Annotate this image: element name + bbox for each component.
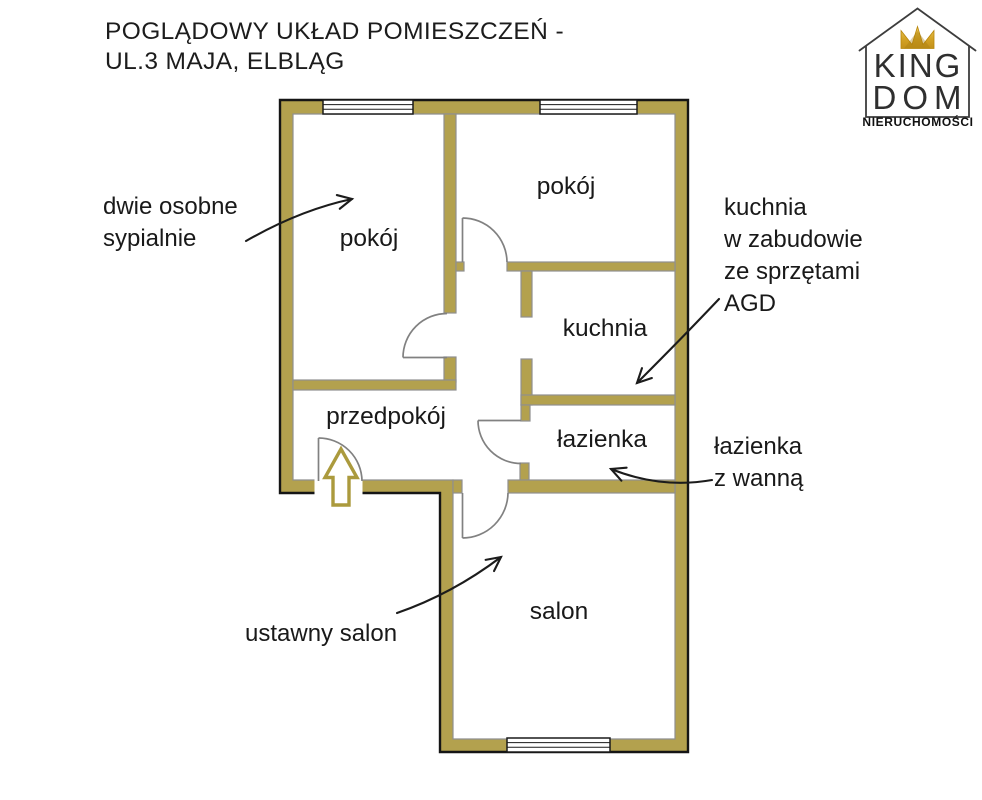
wall-kuchnia-left-upper bbox=[521, 271, 532, 317]
arrow-bedrooms bbox=[246, 199, 352, 241]
note-living-line1: ustawny salon bbox=[245, 618, 397, 650]
floor-plan-drawing bbox=[0, 0, 982, 800]
door-lazienka bbox=[478, 421, 521, 464]
room-label-kuchnia: kuchnia bbox=[563, 315, 647, 343]
note-kitchen: kuchnia w zabudowie ze sprzętami AGD bbox=[724, 192, 863, 320]
logo-word-dom: DOM bbox=[862, 79, 974, 117]
wall-kuchnia-bottom bbox=[521, 395, 675, 405]
door-pokoj-right bbox=[463, 218, 508, 262]
floor-plan-page: POGLĄDOWY UKŁAD POMIESZCZEŃ - UL.3 MAJA,… bbox=[0, 0, 982, 800]
room-label-salon: salon bbox=[530, 598, 589, 626]
window-pokoj-right bbox=[540, 100, 637, 114]
door-pokoj-left bbox=[403, 314, 447, 358]
wall-bedroom-divider-upper bbox=[444, 114, 456, 313]
logo-subtitle: NIERUCHOMOŚCI bbox=[852, 115, 982, 129]
room-label-pokoj-right: pokój bbox=[537, 173, 596, 201]
window-salon bbox=[507, 738, 610, 752]
note-bathroom: łazienka z wanną bbox=[714, 431, 803, 495]
entrance-arrow-icon bbox=[325, 449, 357, 505]
wall-bedroom-divider-return bbox=[444, 357, 456, 382]
note-bedrooms-line1: dwie osobne bbox=[103, 191, 238, 223]
room-label-pokoj-left: pokój bbox=[340, 225, 399, 253]
wall-lazienka-left-lower bbox=[520, 463, 529, 481]
wall-pokoj-left-bottom bbox=[293, 380, 456, 390]
wall-pokoj-right-bottom-nub bbox=[456, 262, 464, 271]
wall-pokoj-right-bottom bbox=[507, 262, 675, 271]
room-label-przedpokoj: przedpokój bbox=[326, 403, 446, 431]
page-title: POGLĄDOWY UKŁAD POMIESZCZEŃ - UL.3 MAJA,… bbox=[105, 17, 564, 77]
note-living: ustawny salon bbox=[245, 618, 397, 650]
note-bathroom-line2: z wanną bbox=[714, 463, 803, 495]
note-kitchen-line4: AGD bbox=[724, 288, 863, 320]
wall-lazienka-bottom bbox=[508, 480, 675, 493]
annotation-arrows bbox=[246, 199, 719, 613]
page-title-line2: UL.3 MAJA, ELBLĄG bbox=[105, 47, 564, 77]
wall-lazienka-left-upper bbox=[521, 405, 530, 421]
note-kitchen-line3: ze sprzętami bbox=[724, 256, 863, 288]
wall-przedpokoj-bottom-end bbox=[453, 480, 462, 493]
note-bedrooms-line2: sypialnie bbox=[103, 223, 238, 255]
door-salon bbox=[463, 493, 509, 538]
note-bedrooms: dwie osobne sypialnie bbox=[103, 191, 238, 255]
window-pokoj-left bbox=[323, 100, 413, 114]
note-kitchen-line2: w zabudowie bbox=[724, 224, 863, 256]
note-kitchen-line1: kuchnia bbox=[724, 192, 863, 224]
room-label-lazienka: łazienka bbox=[557, 426, 647, 454]
page-title-line1: POGLĄDOWY UKŁAD POMIESZCZEŃ - bbox=[105, 17, 564, 47]
note-bathroom-line1: łazienka bbox=[714, 431, 803, 463]
